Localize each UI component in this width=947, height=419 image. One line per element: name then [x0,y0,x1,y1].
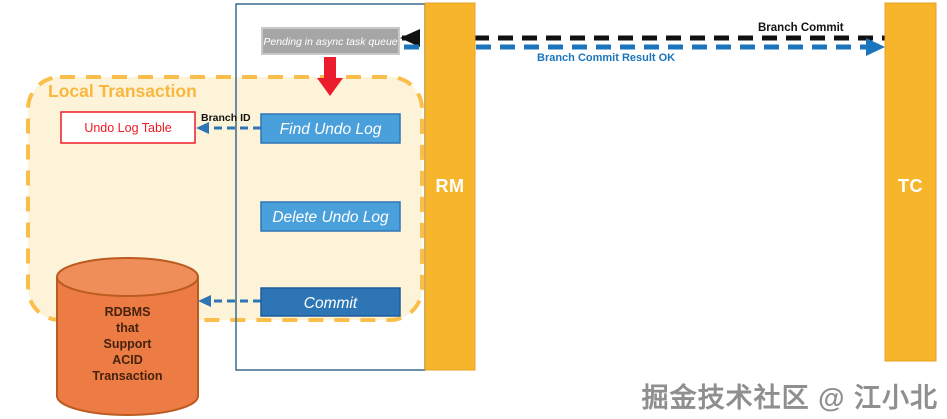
seata-branch-commit-diagram: Local Transaction Branch Commit Branch C… [0,0,947,419]
rdbms-line-2: that [116,321,140,335]
watermark-text: 掘金技术社区 @ 江小北 [642,382,938,413]
rdbms-line-4: ACID [112,353,143,367]
branch-commit-result-message-label: Branch Commit Result OK [537,52,675,64]
branch-id-label: Branch ID [201,112,251,124]
pending-queue-label: Pending in async task queue [263,36,397,48]
branch-commit-message-label: Branch Commit [758,22,844,34]
rdbms-line-1: RDBMS [105,305,151,319]
cylinder-top [57,258,198,296]
delete-undo-log-label: Delete Undo Log [272,209,389,226]
rdbms-line-3: Support [104,337,153,351]
tc-lane-label: TC [898,176,923,196]
find-undo-log-label: Find Undo Log [280,121,382,138]
undo-log-table-label: Undo Log Table [84,121,171,135]
rm-lane-label: RM [436,176,465,196]
diagram-canvas: Local Transaction Branch Commit Branch C… [0,0,947,419]
rdbms-cylinder: RDBMS that Support ACID Transaction [57,258,198,415]
rdbms-line-5: Transaction [92,369,162,383]
commit-label: Commit [304,295,358,312]
local-transaction-label: Local Transaction [48,81,197,101]
